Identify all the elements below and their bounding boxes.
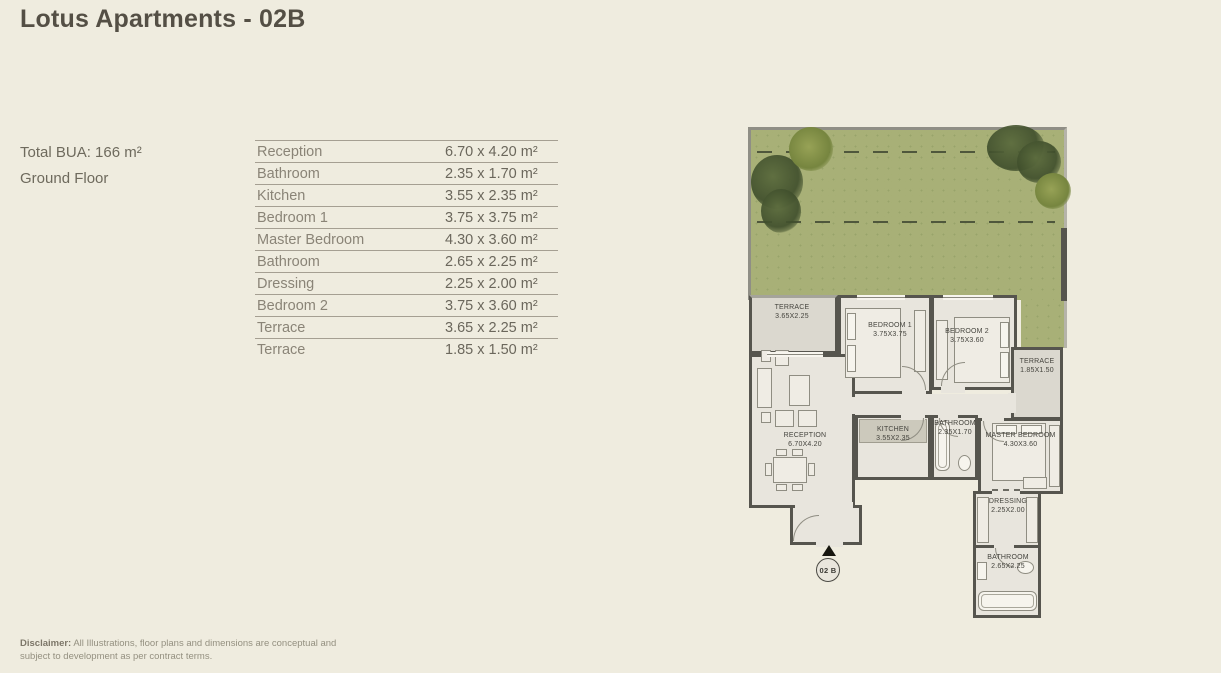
coffee-table: [789, 375, 810, 406]
door-gap-bedroom2: [941, 386, 965, 393]
pillow: [1000, 352, 1009, 378]
dining-chair: [776, 449, 787, 456]
dining-chair: [765, 463, 772, 476]
unit-number-badge: 02 B: [816, 558, 840, 582]
opening-dressing: [992, 489, 1020, 496]
bathtub: [978, 591, 1037, 611]
sofa: [757, 368, 772, 408]
passage-reception-corridor: [851, 397, 858, 414]
floor-plan: TERRACE3.65X2.25 BEDROOM 13.75X3.75 BEDR…: [745, 125, 1075, 622]
dresser: [1023, 477, 1047, 489]
pillow: [847, 345, 856, 372]
label-master-bedroom: MASTER BEDROOM4.30X3.60: [978, 431, 1063, 449]
dining-chair: [808, 463, 815, 476]
disclaimer-label: Disclaimer:: [20, 638, 71, 649]
table-row: Dressing2.25 x 2.00 m²: [255, 272, 558, 294]
unit-info: Total BUA: 166 m² Ground Floor: [20, 140, 142, 192]
label-dressing: DRESSING2.25X2.00: [975, 497, 1041, 515]
table-row: Terrace1.85 x 1.50 m²: [255, 338, 558, 360]
dining-chair: [776, 484, 787, 491]
table-row: Bedroom 23.75 x 3.60 m²: [255, 294, 558, 316]
tree-icon: [1035, 173, 1071, 209]
window-bedroom1: [857, 295, 905, 300]
table-row: Master Bedroom4.30 x 3.60 m²: [255, 228, 558, 250]
garden-dashed-line: [757, 221, 1055, 223]
table-row: Bedroom 13.75 x 3.75 m²: [255, 206, 558, 228]
toilet: [958, 455, 971, 471]
window-bedroom2: [943, 295, 993, 300]
page-title: Lotus Apartments - 02B: [20, 5, 305, 34]
floor-level: Ground Floor: [20, 166, 142, 192]
tree-icon: [789, 127, 833, 171]
pillow: [847, 313, 856, 340]
entrance-arrow-icon: [822, 545, 836, 556]
total-bua: Total BUA: 166 m²: [20, 140, 142, 166]
armchair: [775, 410, 794, 427]
slider-terrace: [767, 352, 823, 357]
table-row: Reception6.70 x 4.20 m²: [255, 140, 558, 162]
pillow: [1000, 322, 1009, 348]
table-row: Terrace3.65 x 2.25 m²: [255, 316, 558, 338]
label-kitchen: KITCHEN3.55X2.35: [857, 425, 929, 443]
table-row: Bathroom2.35 x 1.70 m²: [255, 162, 558, 184]
disclaimer: Disclaimer: All Illustrations, floor pla…: [20, 637, 342, 664]
tree-icon: [761, 189, 801, 233]
door-gap-bedroom1: [902, 390, 926, 397]
label-bedroom1: BEDROOM 13.75X3.75: [857, 321, 923, 339]
label-reception: RECEPTION6.70X4.20: [767, 431, 843, 449]
boundary-wall: [1061, 228, 1067, 301]
passage-reception-entrance: [795, 502, 853, 514]
table-row: Bathroom2.65 x 2.25 m²: [255, 250, 558, 272]
dining-chair: [792, 484, 803, 491]
armchair: [798, 410, 817, 427]
dining-chair: [792, 449, 803, 456]
wardrobe: [914, 310, 926, 372]
label-terrace-top: TERRACE3.65X2.25: [753, 303, 831, 321]
label-bathroom2: BATHROOM2.65X2.25: [975, 553, 1041, 571]
passage-terrace-right: [1008, 393, 1016, 413]
label-bedroom2: BEDROOM 23.75X3.60: [937, 327, 997, 345]
dining-table: [773, 457, 807, 483]
table-row: Kitchen3.55 x 2.35 m²: [255, 184, 558, 206]
garden-area-right: [1021, 300, 1067, 348]
label-terrace-right: TERRACE1.85X1.50: [1011, 357, 1063, 375]
brochure-page: { "page": { "title": "Lotus Apartments -…: [0, 0, 1221, 673]
dimensions-table: Reception6.70 x 4.20 m² Bathroom2.35 x 1…: [255, 140, 558, 360]
side-table: [761, 412, 771, 423]
label-bathroom1: BATHROOM2.35X1.70: [925, 419, 985, 437]
